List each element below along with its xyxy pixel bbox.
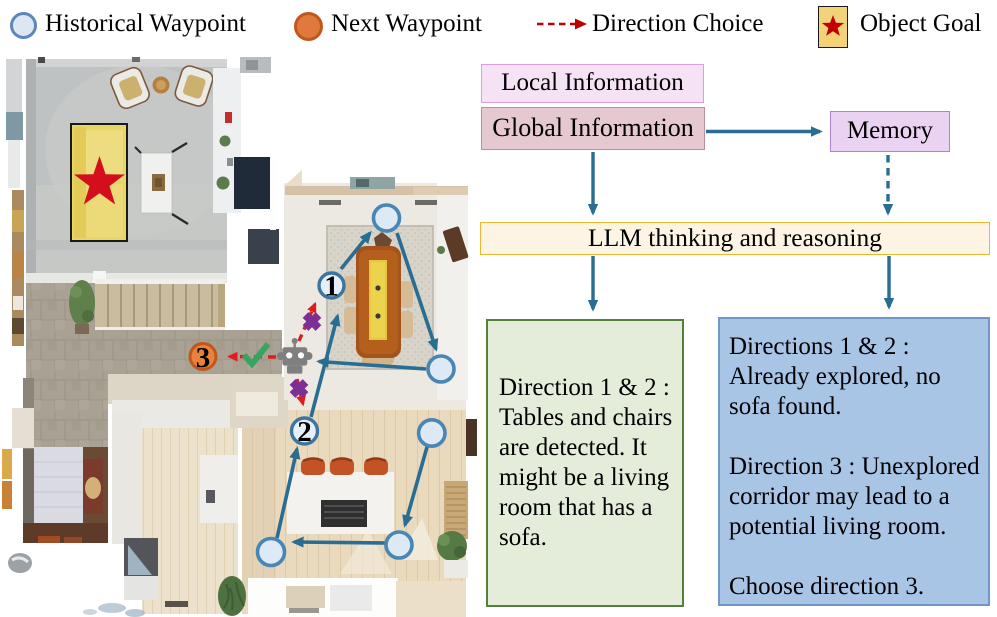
svg-text:1: 1 [324,271,339,303]
svg-text:3: 3 [196,342,211,374]
svg-text:2: 2 [297,416,312,448]
